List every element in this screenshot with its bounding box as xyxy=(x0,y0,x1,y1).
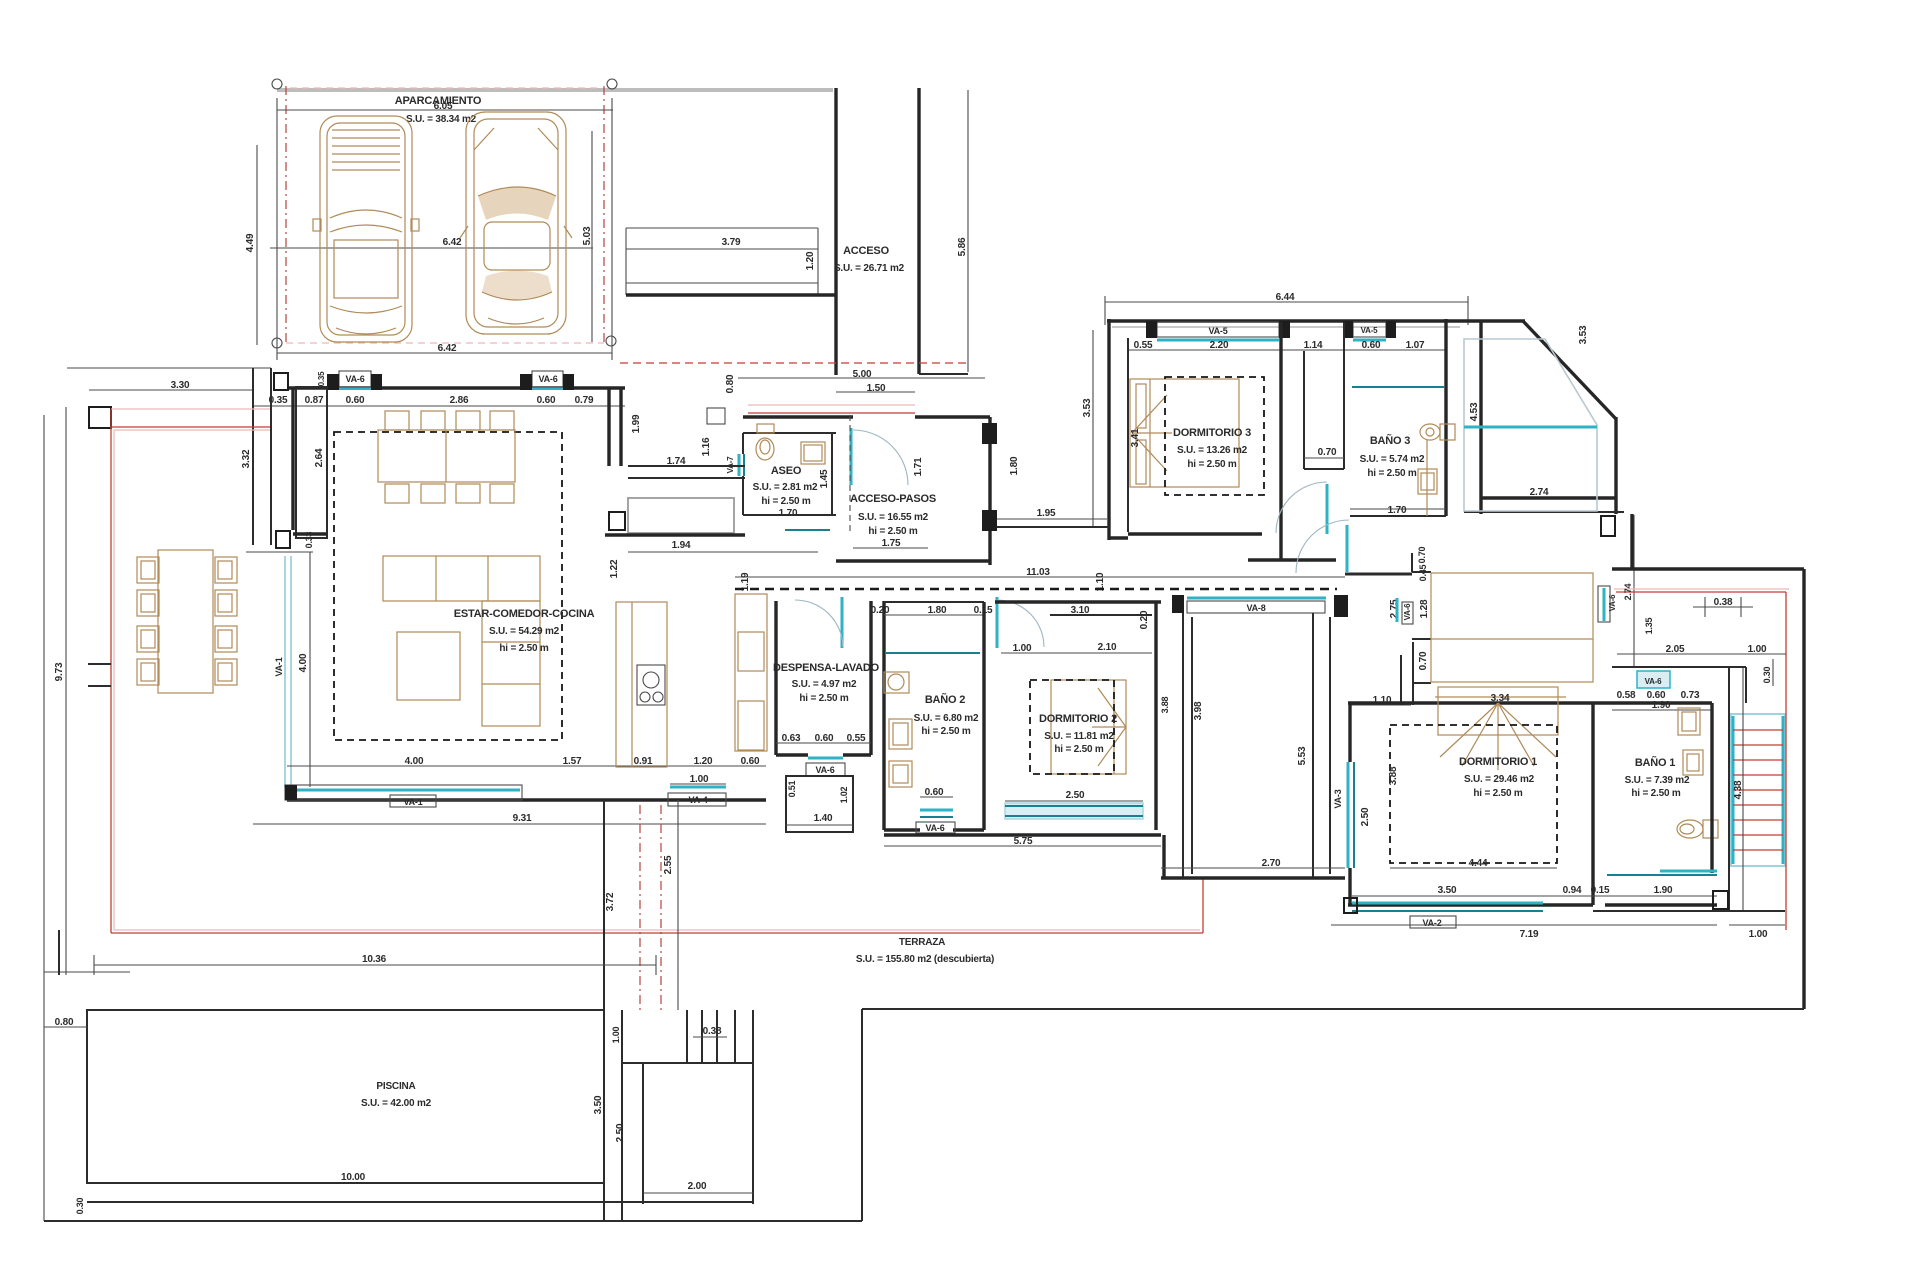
svg-text:1.80: 1.80 xyxy=(928,605,947,616)
svg-text:0.55: 0.55 xyxy=(847,733,866,744)
svg-text:1.94: 1.94 xyxy=(672,540,691,551)
svg-text:1.70: 1.70 xyxy=(1388,505,1407,516)
svg-text:S.U. = 4.97 m2: S.U. = 4.97 m2 xyxy=(792,679,857,690)
svg-text:S.U. = 11.81 m2: S.U. = 11.81 m2 xyxy=(1044,731,1114,742)
svg-text:0.94: 0.94 xyxy=(1563,885,1582,896)
svg-text:0.60: 0.60 xyxy=(925,787,944,798)
svg-text:hi = 2.50 m: hi = 2.50 m xyxy=(499,643,549,654)
svg-text:hi = 2.50 m: hi = 2.50 m xyxy=(1367,468,1417,479)
svg-text:3.72: 3.72 xyxy=(605,892,616,911)
svg-text:S.U. = 2.81 m2: S.U. = 2.81 m2 xyxy=(753,482,818,493)
svg-text:4.00: 4.00 xyxy=(405,756,424,767)
svg-text:2.00: 2.00 xyxy=(688,1181,707,1192)
svg-text:hi = 2.50 m: hi = 2.50 m xyxy=(1631,788,1681,799)
svg-text:VA-6: VA-6 xyxy=(815,765,834,775)
svg-text:0.70: 0.70 xyxy=(1418,651,1429,670)
svg-text:1.00: 1.00 xyxy=(611,1026,621,1043)
svg-text:S.U. = 54.29 m2: S.U. = 54.29 m2 xyxy=(489,626,560,637)
svg-text:3.79: 3.79 xyxy=(722,237,741,248)
svg-text:4.53: 4.53 xyxy=(1469,402,1480,421)
svg-text:2.55: 2.55 xyxy=(663,855,674,874)
svg-text:5.75: 5.75 xyxy=(1014,836,1033,847)
svg-text:2.74: 2.74 xyxy=(1530,487,1549,498)
svg-text:0.58: 0.58 xyxy=(1617,690,1636,701)
svg-text:3.34: 3.34 xyxy=(1491,693,1510,704)
svg-text:9.31: 9.31 xyxy=(513,813,532,824)
svg-text:1.20: 1.20 xyxy=(805,251,816,270)
svg-text:DORMITORIO 1: DORMITORIO 1 xyxy=(1459,756,1537,768)
svg-text:0.38: 0.38 xyxy=(1714,597,1733,608)
svg-text:hi = 2.50 m: hi = 2.50 m xyxy=(1187,459,1237,470)
svg-text:VA-6: VA-6 xyxy=(538,374,557,384)
svg-text:ASEO: ASEO xyxy=(771,465,802,477)
svg-text:1.70: 1.70 xyxy=(779,508,798,519)
svg-text:DESPENSA-LAVADO: DESPENSA-LAVADO xyxy=(773,662,880,674)
svg-text:3.88: 3.88 xyxy=(1160,696,1170,713)
svg-text:VA-3: VA-3 xyxy=(1333,789,1343,808)
svg-text:2.74: 2.74 xyxy=(1623,583,1633,600)
svg-text:S.U. = 42.00 m2: S.U. = 42.00 m2 xyxy=(361,1098,432,1109)
svg-text:DORMITORIO 3: DORMITORIO 3 xyxy=(1173,427,1251,439)
svg-text:2.70: 2.70 xyxy=(1262,858,1281,869)
svg-text:4.38: 4.38 xyxy=(1733,780,1744,799)
svg-text:0.30: 0.30 xyxy=(1762,666,1772,683)
svg-text:0.33: 0.33 xyxy=(304,531,314,548)
svg-text:VA-6: VA-6 xyxy=(1608,594,1617,612)
svg-text:0.87: 0.87 xyxy=(305,395,324,406)
svg-text:S.U. = 26.71 m2: S.U. = 26.71 m2 xyxy=(834,263,905,274)
svg-text:ACCESO-PASOS: ACCESO-PASOS xyxy=(850,493,936,505)
svg-text:6.05: 6.05 xyxy=(434,101,453,112)
svg-text:S.U. = 7.39 m2: S.U. = 7.39 m2 xyxy=(1625,775,1690,786)
svg-text:ESTAR-COMEDOR-COCINA: ESTAR-COMEDOR-COCINA xyxy=(454,608,595,620)
svg-text:VA-1: VA-1 xyxy=(274,657,284,676)
svg-text:1.35: 1.35 xyxy=(1644,617,1654,634)
svg-text:VA-8: VA-8 xyxy=(1246,603,1265,613)
svg-text:0.60: 0.60 xyxy=(741,756,760,767)
svg-text:7.19: 7.19 xyxy=(1520,929,1539,940)
svg-text:TERRAZA: TERRAZA xyxy=(899,937,945,948)
svg-text:VA-6: VA-6 xyxy=(925,823,944,833)
svg-text:5.86: 5.86 xyxy=(957,237,968,256)
svg-text:4.49: 4.49 xyxy=(245,233,256,252)
svg-text:1.57: 1.57 xyxy=(563,756,582,767)
svg-text:0.73: 0.73 xyxy=(1681,690,1700,701)
svg-text:hi = 2.50 m: hi = 2.50 m xyxy=(761,496,811,507)
svg-text:1.00: 1.00 xyxy=(1013,643,1032,654)
svg-text:0.55: 0.55 xyxy=(1134,340,1153,351)
svg-text:3.50: 3.50 xyxy=(1438,885,1457,896)
svg-text:1.95: 1.95 xyxy=(1037,508,1056,519)
svg-text:0.60: 0.60 xyxy=(346,395,365,406)
svg-text:0.51: 0.51 xyxy=(787,780,797,797)
svg-text:1.00: 1.00 xyxy=(690,774,709,785)
svg-text:2.86: 2.86 xyxy=(450,395,469,406)
svg-text:3.41: 3.41 xyxy=(1130,428,1141,447)
svg-text:S.U. = 13.26 m2: S.U. = 13.26 m2 xyxy=(1177,445,1248,456)
svg-text:0.20: 0.20 xyxy=(871,605,890,616)
svg-text:1.90: 1.90 xyxy=(1654,885,1673,896)
svg-text:3.88: 3.88 xyxy=(1388,766,1399,785)
svg-text:5.03: 5.03 xyxy=(582,226,593,245)
svg-text:1.80: 1.80 xyxy=(1009,456,1020,475)
svg-text:10.00: 10.00 xyxy=(341,1172,366,1183)
svg-text:0.38: 0.38 xyxy=(703,1026,722,1037)
svg-text:ACCESO: ACCESO xyxy=(843,245,890,257)
svg-text:BAÑO 3: BAÑO 3 xyxy=(1370,434,1410,447)
svg-text:VA-4: VA-4 xyxy=(688,795,707,805)
svg-text:DORMITORIO 2: DORMITORIO 2 xyxy=(1039,713,1117,725)
svg-text:0.63: 0.63 xyxy=(782,733,801,744)
svg-text:2.64: 2.64 xyxy=(314,448,325,467)
svg-text:hi = 2.50 m: hi = 2.50 m xyxy=(1054,744,1104,755)
svg-text:S.U. = 38.34 m2: S.U. = 38.34 m2 xyxy=(406,114,477,125)
svg-text:3.53: 3.53 xyxy=(1578,325,1589,344)
svg-text:2.20: 2.20 xyxy=(1210,340,1229,351)
svg-text:1.40: 1.40 xyxy=(814,813,833,824)
svg-text:2.50: 2.50 xyxy=(1066,790,1085,801)
svg-text:S.U. = 155.80 m2 (descubierta): S.U. = 155.80 m2 (descubierta) xyxy=(856,954,994,965)
svg-text:VA-5: VA-5 xyxy=(1208,326,1227,336)
svg-text:1.16: 1.16 xyxy=(701,437,712,456)
svg-text:S.U. = 16.55 m2: S.U. = 16.55 m2 xyxy=(858,512,929,523)
svg-text:VA-6: VA-6 xyxy=(1645,677,1663,686)
svg-text:2.10: 2.10 xyxy=(1098,642,1117,653)
svg-text:0.79: 0.79 xyxy=(575,395,594,406)
svg-text:0.70: 0.70 xyxy=(1318,447,1337,458)
svg-text:3.50: 3.50 xyxy=(593,1095,604,1114)
svg-text:10.36: 10.36 xyxy=(362,954,387,965)
svg-text:5.00: 5.00 xyxy=(853,369,872,380)
svg-text:S.U. = 5.74 m2: S.U. = 5.74 m2 xyxy=(1360,454,1425,465)
svg-text:4.44: 4.44 xyxy=(1469,858,1488,869)
svg-text:1.74: 1.74 xyxy=(667,456,686,467)
svg-text:9.73: 9.73 xyxy=(54,662,65,681)
svg-text:hi = 2.50 m: hi = 2.50 m xyxy=(799,693,849,704)
svg-text:0.60: 0.60 xyxy=(1647,690,1666,701)
svg-text:1.00: 1.00 xyxy=(1749,929,1768,940)
svg-text:1.00: 1.00 xyxy=(1748,644,1767,655)
svg-text:4.00: 4.00 xyxy=(298,653,309,672)
svg-text:VA-5: VA-5 xyxy=(1361,326,1379,335)
svg-text:1.99: 1.99 xyxy=(631,414,642,433)
svg-text:S.U. = 6.80 m2: S.U. = 6.80 m2 xyxy=(914,713,979,724)
svg-text:0.60: 0.60 xyxy=(1362,340,1381,351)
svg-text:1.02: 1.02 xyxy=(839,786,849,803)
svg-text:0.30: 0.30 xyxy=(75,1197,85,1214)
svg-text:2.50: 2.50 xyxy=(615,1123,626,1142)
svg-text:BAÑO 2: BAÑO 2 xyxy=(925,693,965,706)
svg-text:VA-6: VA-6 xyxy=(1403,603,1412,621)
svg-text:hi = 2.50 m: hi = 2.50 m xyxy=(921,726,971,737)
svg-text:3.30: 3.30 xyxy=(171,380,190,391)
svg-text:VA-6: VA-6 xyxy=(345,374,364,384)
svg-text:1.90: 1.90 xyxy=(1652,700,1671,711)
svg-text:0.35: 0.35 xyxy=(317,371,326,387)
svg-text:2.50: 2.50 xyxy=(1360,807,1371,826)
svg-text:VA-2: VA-2 xyxy=(1422,918,1441,928)
svg-text:3.10: 3.10 xyxy=(1071,605,1090,616)
svg-text:1.75: 1.75 xyxy=(882,538,901,549)
svg-text:2.05: 2.05 xyxy=(1666,644,1685,655)
svg-text:S.U. = 29.46 m2: S.U. = 29.46 m2 xyxy=(1464,774,1535,785)
svg-text:1.14: 1.14 xyxy=(1304,340,1323,351)
svg-text:hi = 2.50 m: hi = 2.50 m xyxy=(1473,788,1523,799)
svg-text:PISCINA: PISCINA xyxy=(376,1081,415,1092)
svg-text:VA-7: VA-7 xyxy=(726,456,735,474)
svg-text:6.42: 6.42 xyxy=(438,343,457,354)
svg-text:0.91: 0.91 xyxy=(634,756,653,767)
svg-text:1.45: 1.45 xyxy=(819,469,830,488)
svg-text:hi = 2.50 m: hi = 2.50 m xyxy=(868,526,918,537)
svg-text:3.98: 3.98 xyxy=(1193,701,1204,720)
svg-text:1.20: 1.20 xyxy=(694,756,713,767)
svg-text:1.07: 1.07 xyxy=(1406,340,1425,351)
svg-text:0.20: 0.20 xyxy=(1139,610,1150,629)
svg-text:11.03: 11.03 xyxy=(1026,567,1050,578)
svg-text:1.28: 1.28 xyxy=(1419,599,1430,618)
svg-text:0.60: 0.60 xyxy=(537,395,556,406)
svg-text:BAÑO 1: BAÑO 1 xyxy=(1635,756,1675,769)
svg-text:1.22: 1.22 xyxy=(609,559,620,578)
svg-text:5.53: 5.53 xyxy=(1297,746,1308,765)
svg-text:3.32: 3.32 xyxy=(241,449,252,468)
svg-text:0.80: 0.80 xyxy=(725,374,736,393)
svg-text:1.71: 1.71 xyxy=(913,457,924,476)
svg-text:0.80: 0.80 xyxy=(55,1017,74,1028)
svg-text:0.70: 0.70 xyxy=(1417,546,1427,563)
svg-text:1.50: 1.50 xyxy=(867,383,886,394)
svg-text:VA-1: VA-1 xyxy=(403,797,422,807)
svg-text:6.44: 6.44 xyxy=(1276,292,1295,303)
svg-text:0.15: 0.15 xyxy=(1591,885,1610,896)
svg-text:3.53: 3.53 xyxy=(1082,398,1093,417)
svg-text:0.60: 0.60 xyxy=(815,733,834,744)
svg-text:6.42: 6.42 xyxy=(443,237,462,248)
